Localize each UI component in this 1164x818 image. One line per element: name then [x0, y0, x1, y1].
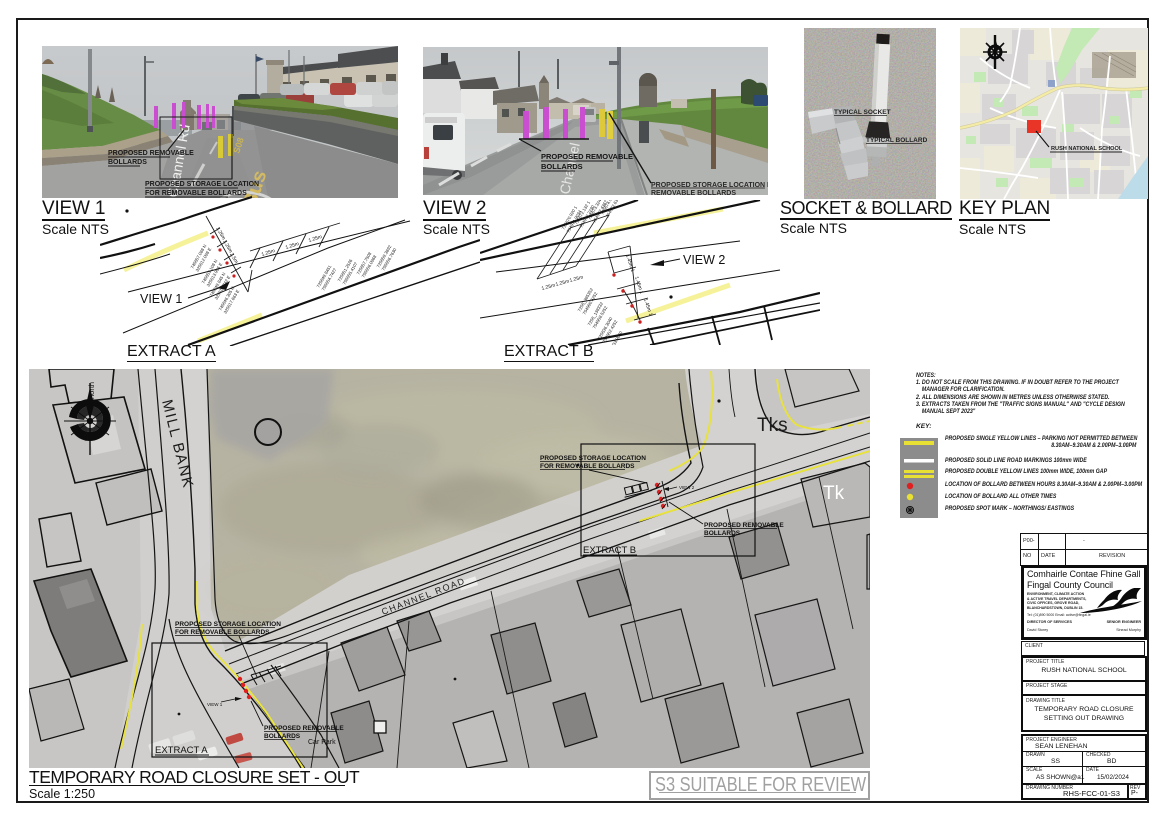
svg-text:PROPOSED REMOVABLE: PROPOSED REMOVABLE — [108, 150, 194, 157]
svg-text:PROPOSED REMOVABLE: PROPOSED REMOVABLE — [264, 725, 344, 732]
svg-text:VIEW 1: VIEW 1 — [140, 292, 182, 306]
svg-text:EXTRACT B: EXTRACT B — [583, 545, 636, 556]
svg-text:BOLLARDS: BOLLARDS — [541, 162, 583, 171]
svg-text:FOR REMOVABLE BOLLARDS: FOR REMOVABLE BOLLARDS — [540, 463, 635, 470]
svg-text:PROPOSED STORAGE LOCATION: PROPOSED STORAGE LOCATION — [540, 455, 646, 462]
svg-text:Tk: Tk — [823, 483, 845, 504]
svg-text:VIEW 2: VIEW 2 — [683, 253, 725, 267]
svg-text:PROPOSED STORAGE LOCATION: PROPOSED STORAGE LOCATION — [145, 181, 259, 188]
svg-text:OS: OS — [84, 433, 90, 441]
svg-text:Tks: Tks — [757, 415, 788, 436]
svg-text:VIEW 1: VIEW 1 — [207, 702, 223, 707]
svg-text:VIEW 2: VIEW 2 — [679, 485, 695, 490]
svg-text:REMOVABLE BOLLARDS: REMOVABLE BOLLARDS — [651, 190, 736, 195]
svg-text:BOLLARDS: BOLLARDS — [704, 530, 741, 537]
svg-text:1.25m: 1.25m — [569, 275, 584, 284]
svg-text:TYPICAL BOLLARD: TYPICAL BOLLARD — [866, 137, 928, 144]
svg-text:Car Park: Car Park — [308, 739, 336, 746]
svg-text:PROPOSED STORAGE LOCATION: PROPOSED STORAGE LOCATION — [175, 621, 281, 628]
svg-text:PROPOSED REMOVABLE: PROPOSED REMOVABLE — [541, 152, 633, 161]
svg-text:TYPICAL SOCKET: TYPICAL SOCKET — [834, 109, 891, 116]
svg-text:RUSH NATIONAL SCHOOL: RUSH NATIONAL SCHOOL — [1051, 146, 1123, 152]
svg-text:FOR REMOVABLE BOLLARDS: FOR REMOVABLE BOLLARDS — [175, 629, 270, 636]
svg-text:1.25m: 1.25m — [555, 279, 570, 288]
svg-text:BOLLARDS: BOLLARDS — [264, 733, 301, 740]
svg-text:EXTRACT A: EXTRACT A — [155, 745, 208, 756]
svg-text:PROPOSED REMOVABLE: PROPOSED REMOVABLE — [704, 522, 784, 529]
svg-text:BOLLARDS: BOLLARDS — [108, 159, 147, 166]
svg-text:1.25m: 1.25m — [541, 283, 556, 292]
